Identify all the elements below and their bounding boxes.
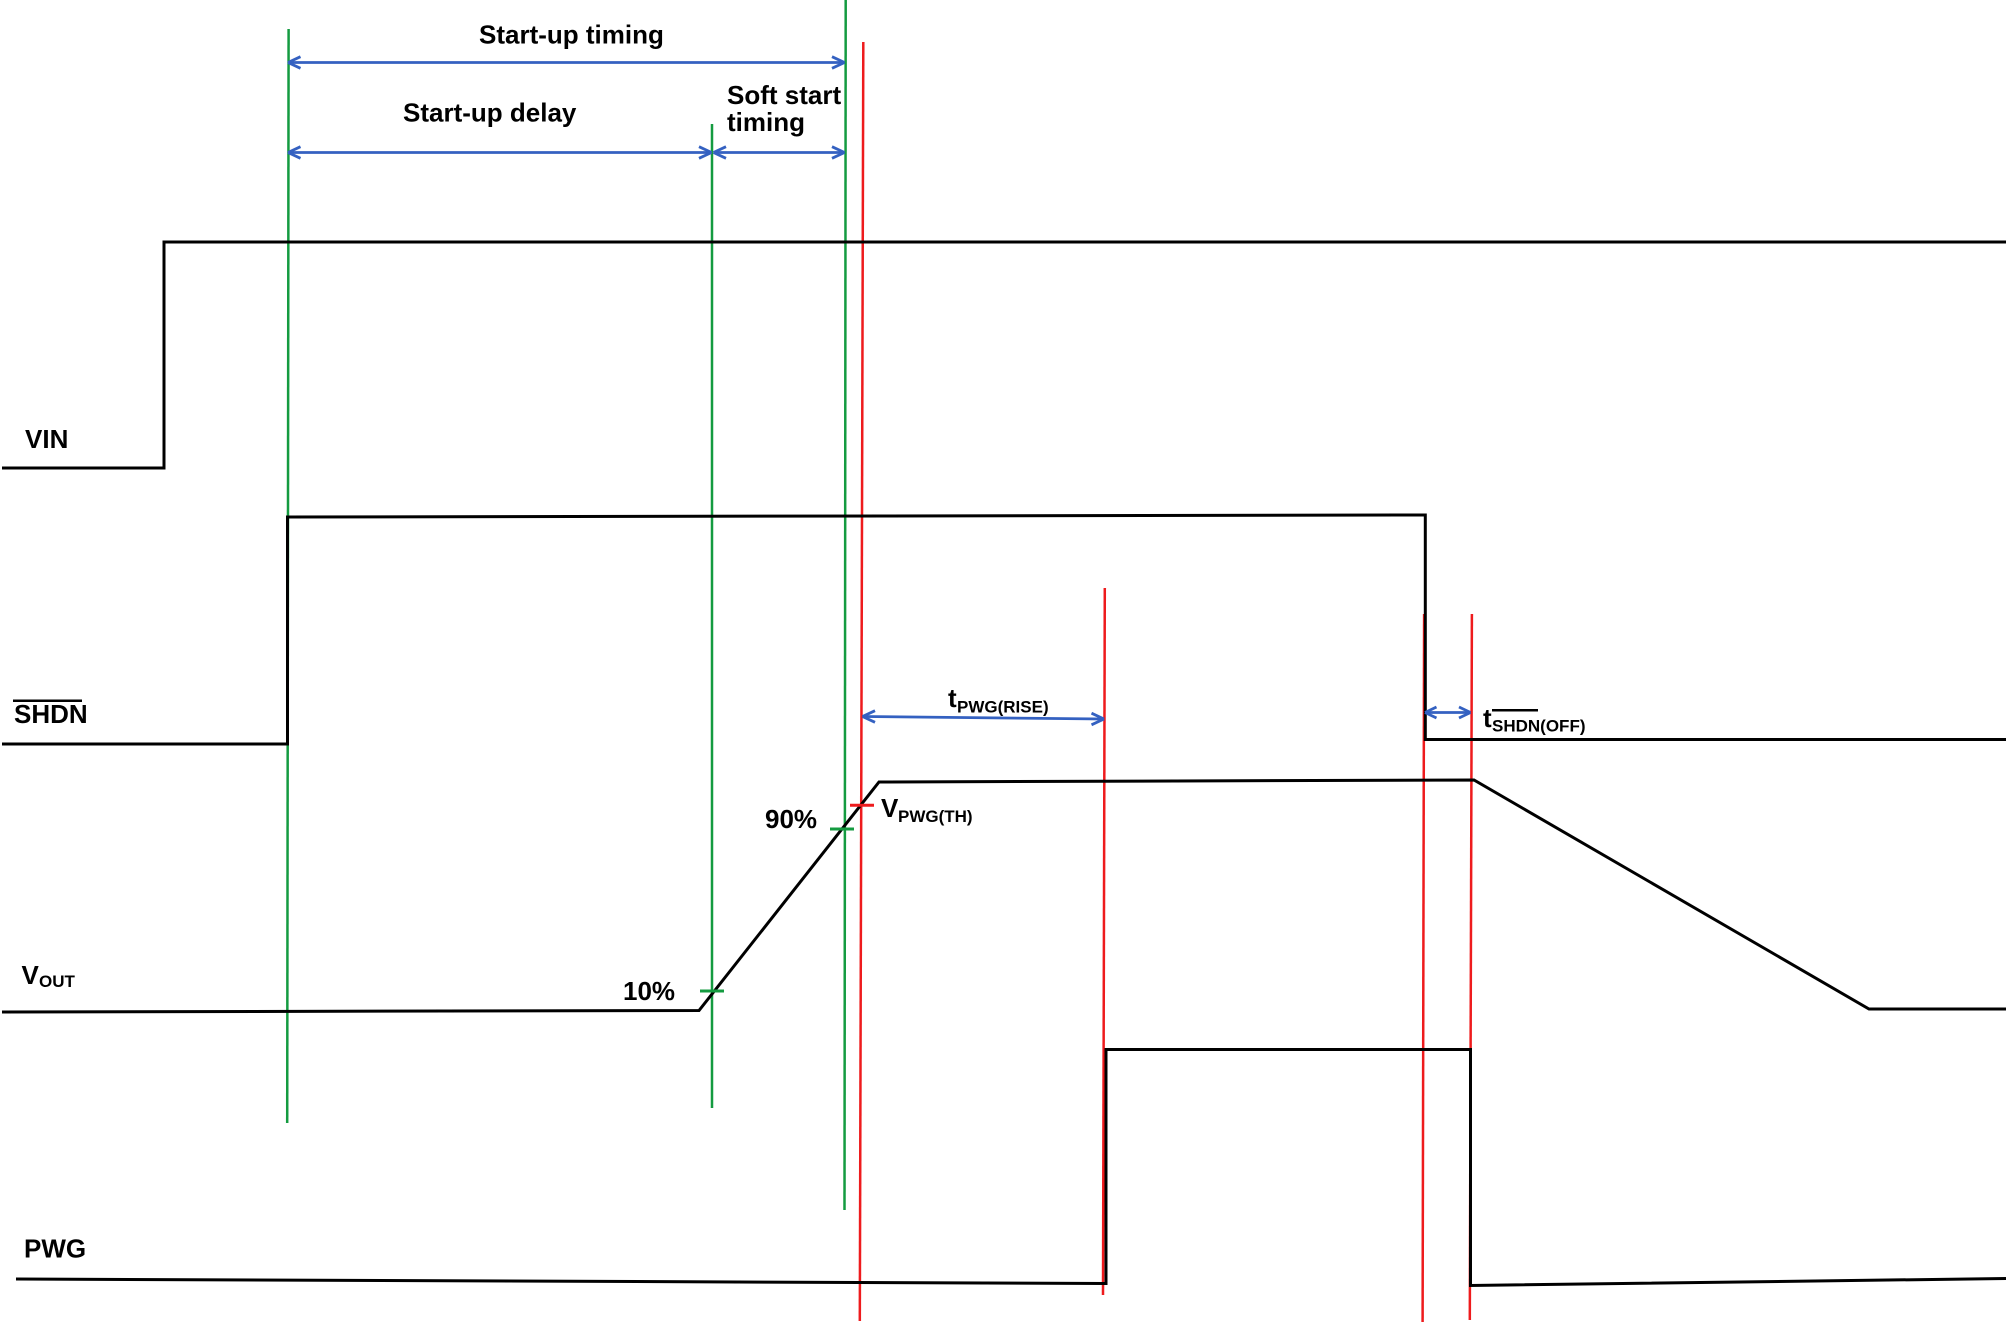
svg-text:VIN: VIN xyxy=(25,424,68,454)
svg-text:OUT: OUT xyxy=(39,972,76,991)
svg-text:timing: timing xyxy=(727,107,805,137)
svg-text:SHDN(OFF): SHDN(OFF) xyxy=(1492,717,1585,736)
svg-text:10%: 10% xyxy=(623,976,675,1006)
svg-text:t: t xyxy=(1483,703,1492,733)
svg-text:PWG: PWG xyxy=(24,1234,86,1264)
svg-text:SHDN: SHDN xyxy=(14,699,88,729)
svg-text:Start-up delay: Start-up delay xyxy=(403,98,577,128)
svg-text:t: t xyxy=(948,683,957,713)
svg-text:V: V xyxy=(881,793,899,823)
svg-text:PWG(RISE): PWG(RISE) xyxy=(957,698,1049,717)
svg-text:90%: 90% xyxy=(765,804,817,834)
svg-text:PWG(TH): PWG(TH) xyxy=(898,807,973,826)
svg-text:Soft start: Soft start xyxy=(727,80,841,110)
svg-text:Start-up timing: Start-up timing xyxy=(479,20,664,50)
svg-text:V: V xyxy=(22,960,40,990)
